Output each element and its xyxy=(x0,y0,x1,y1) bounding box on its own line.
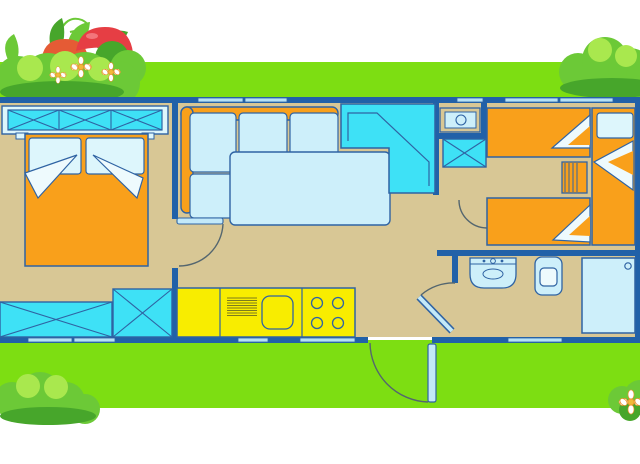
door-leaf xyxy=(177,218,223,224)
dining-table xyxy=(230,152,390,225)
water-heater-closet xyxy=(440,108,480,132)
drain-icon xyxy=(625,263,631,269)
window-icon xyxy=(74,338,115,342)
window-icon xyxy=(508,338,562,342)
toilet xyxy=(535,257,562,295)
wall-closet-right xyxy=(481,103,487,133)
window-icon xyxy=(28,338,72,342)
window-icon xyxy=(560,98,613,102)
sofa-cushion xyxy=(190,113,236,172)
wall-bedroom-living-upper xyxy=(172,103,178,219)
nightstand xyxy=(562,162,587,193)
double-bedroom xyxy=(0,106,172,337)
twin-bed-side xyxy=(592,108,635,245)
shower xyxy=(582,258,635,333)
floorplan-svg xyxy=(0,0,640,464)
twin-bed-bottom xyxy=(487,198,590,245)
cross-cabinet xyxy=(443,139,486,167)
tap-dot-icon xyxy=(483,260,486,263)
window-icon xyxy=(457,98,483,102)
washbasin xyxy=(470,258,516,288)
window-icon xyxy=(238,338,268,342)
window-icon xyxy=(198,98,243,102)
wall-under-closet xyxy=(433,133,487,139)
window-icon xyxy=(300,338,355,342)
grass-band-bottom xyxy=(0,340,640,408)
floorplan-illustration xyxy=(0,0,640,464)
kitchen xyxy=(177,288,355,337)
pillow xyxy=(597,113,633,138)
window-icon xyxy=(245,98,287,102)
wall-bathroom-stub xyxy=(452,256,458,283)
tap-dot-icon xyxy=(501,260,504,263)
door-leaf xyxy=(428,344,436,402)
twin-bed-top xyxy=(487,108,590,157)
double-bed xyxy=(25,134,148,266)
kitchen-sink xyxy=(262,296,293,329)
wardrobe-cabinet-tall xyxy=(113,289,172,337)
wardrobe-cabinet-low xyxy=(0,302,112,337)
window-icon xyxy=(505,98,558,102)
sofa-cushion xyxy=(190,174,236,218)
wall-bathroom-top xyxy=(437,250,640,256)
